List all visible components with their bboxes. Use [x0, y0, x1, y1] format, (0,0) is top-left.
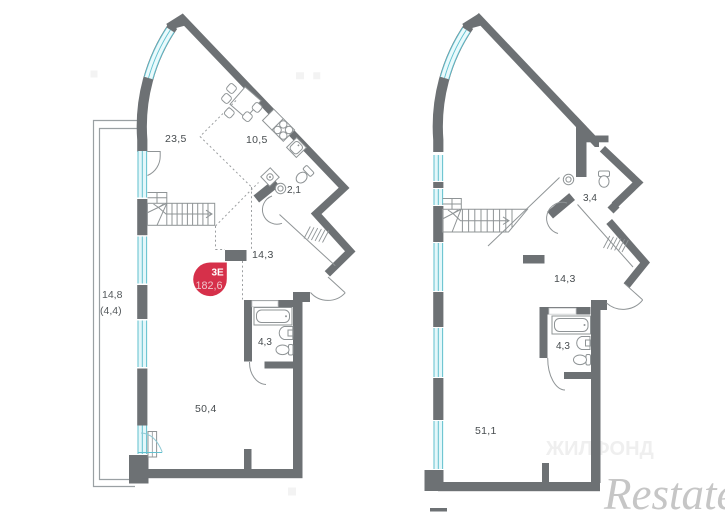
svg-text:50,4: 50,4	[195, 403, 217, 415]
svg-text:182,6: 182,6	[196, 280, 223, 292]
svg-text:23,5: 23,5	[165, 133, 187, 145]
svg-text:14,3: 14,3	[252, 249, 274, 261]
svg-text:3,4: 3,4	[583, 193, 597, 204]
svg-text:(4,4): (4,4)	[100, 305, 122, 317]
svg-text:3Е: 3Е	[212, 268, 225, 279]
svg-text:4,3: 4,3	[258, 337, 272, 348]
svg-text:Restate: Restate	[603, 469, 725, 513]
svg-text:14,8: 14,8	[102, 289, 123, 301]
svg-text:2,1: 2,1	[287, 185, 301, 196]
svg-text:14,3: 14,3	[554, 273, 576, 285]
svg-text:51,1: 51,1	[475, 425, 497, 437]
svg-text:4,3: 4,3	[556, 341, 570, 352]
svg-text:10,5: 10,5	[246, 134, 268, 146]
